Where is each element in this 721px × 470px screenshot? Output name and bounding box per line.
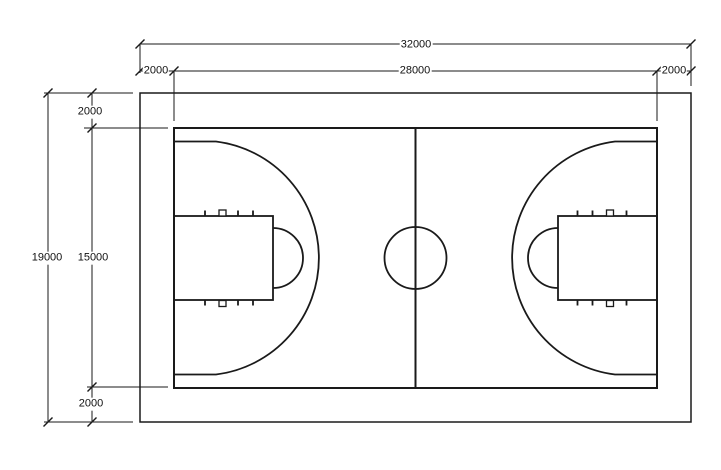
dim-label-court-height: 15000 [77,252,110,265]
key-right [558,216,657,300]
three-point-line-left [174,142,319,375]
key-left [174,216,273,300]
lane-block [607,210,614,216]
lane-marks-right-bottom [578,301,627,307]
three-point-line-right [512,142,657,375]
dim-label-total-width: 32000 [400,39,433,52]
dim-label-total-height: 19000 [31,252,64,265]
dimension-arrows [44,40,696,427]
dim-label-margin-right: 2000 [661,65,687,78]
lane-marks-left-bottom [205,301,253,307]
court-plan-svg [0,0,721,470]
free-throw-arc-left [273,228,303,288]
lane-block [607,301,614,307]
dim-label-court-width: 28000 [399,65,432,78]
lane-block [219,301,226,307]
free-throw-arc-right [528,228,558,288]
dim-label-margin-top: 2000 [77,106,103,119]
court-markings [174,128,657,388]
lane-block [219,210,226,216]
dimension-lines [44,44,691,422]
dim-label-margin-bottom: 2000 [78,398,104,411]
dim-label-margin-left: 2000 [143,65,169,78]
drawing-canvas: 32000 2000 28000 2000 2000 19000 15000 2… [0,0,721,470]
